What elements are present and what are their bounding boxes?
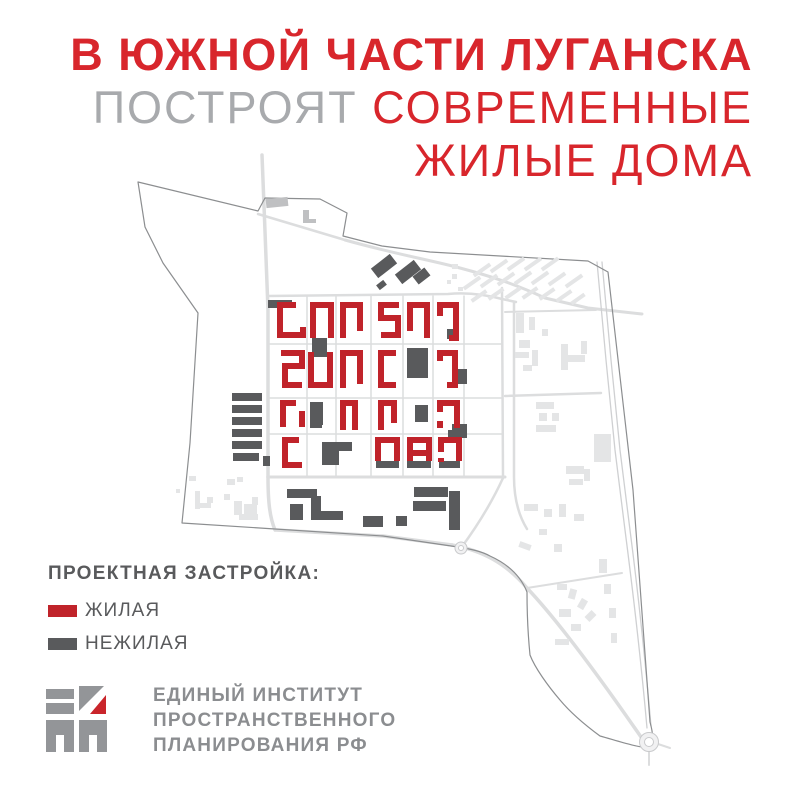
nonresidential-building: [232, 417, 262, 425]
residential-building: [410, 440, 429, 461]
residential-building: [381, 305, 399, 335]
nonresidential-building: [322, 449, 339, 465]
existing-building: [524, 257, 543, 272]
existing-building: [234, 501, 242, 515]
existing-building: [566, 466, 584, 474]
existing-building: [452, 274, 457, 279]
existing-building: [524, 504, 538, 511]
headline-word-gray: ПОСТРОЯТ: [93, 82, 358, 133]
roundabout-island: [645, 738, 654, 747]
existing-building: [176, 489, 180, 493]
residential-building: [343, 403, 355, 430]
road: [258, 214, 345, 240]
nonresidential-building: [439, 461, 460, 468]
existing-building: [458, 287, 463, 291]
existing-building: [224, 494, 230, 500]
nonresidential-building: [414, 487, 448, 497]
nonresidential-building: [413, 501, 446, 511]
road: [505, 393, 601, 396]
railway-line: [602, 262, 651, 726]
nonresidential-building: [396, 516, 407, 526]
existing-building: [536, 402, 554, 409]
existing-building: [555, 289, 572, 303]
railway-line: [597, 262, 647, 728]
existing-building: [239, 514, 258, 520]
existing-building: [504, 286, 521, 300]
existing-building: [565, 274, 584, 289]
existing-building: [584, 610, 596, 622]
existing-building: [490, 259, 509, 274]
nonresidential-building: [376, 461, 399, 468]
headline-line-2: ПОСТРОЯТ СОВРЕМЕННЫЕ: [40, 81, 753, 134]
residential-building: [285, 440, 302, 465]
existing-building: [542, 329, 548, 336]
headline-word-red: СОВРЕМЕННЫЕ: [372, 82, 753, 133]
existing-building: [207, 497, 213, 503]
nonresidential-building: [415, 405, 428, 422]
existing-building: [594, 434, 611, 462]
existing-building: [559, 609, 571, 617]
existing-building: [584, 469, 590, 481]
residential-building: [378, 440, 397, 461]
residential-building: [283, 403, 302, 427]
existing-building: [237, 477, 243, 482]
existing-building: [552, 413, 559, 421]
nonresidential-building: [319, 511, 343, 520]
existing-building: [539, 529, 547, 535]
existing-building: [252, 497, 258, 505]
residential-building: [440, 353, 455, 385]
existing-building: [609, 608, 616, 618]
headline-line-1: В ЮЖНОЙ ЧАСТИ ЛУГАНСКА: [40, 28, 753, 81]
residential-swatch: [48, 605, 77, 617]
existing-building: [189, 476, 196, 481]
existing-building: [518, 541, 531, 551]
nonresidential-building: [232, 393, 262, 401]
road: [268, 477, 275, 530]
nonresidential-building: [376, 280, 387, 290]
residential-building: [343, 353, 360, 388]
institute-logo-text: ЕДИНЫЙ ИНСТИТУТ ПРОСТРАНСТВЕННОГО ПЛАНИР…: [153, 683, 396, 758]
existing-building: [555, 639, 569, 645]
existing-building: [507, 257, 526, 272]
existing-building: [604, 584, 611, 594]
residential-building: [280, 305, 303, 335]
residential-building: [381, 353, 396, 385]
nonresidential-building: [371, 254, 397, 278]
legend-heading: ПРОЕКТНАЯ ЗАСТРОЙКА:: [48, 563, 320, 585]
existing-building: [463, 276, 482, 291]
existing-building: [611, 633, 617, 643]
existing-building: [529, 317, 535, 330]
existing-building: [571, 624, 581, 631]
existing-building: [447, 280, 451, 284]
legend-label-nonresidential: НЕЖИЛАЯ: [85, 633, 188, 655]
existing-building: [574, 514, 584, 521]
existing-building: [561, 355, 585, 362]
existing-building: [554, 544, 562, 552]
existing-building: [581, 341, 587, 354]
legend: ПРОЕКТНАЯ ЗАСТРОЙКА: ЖИЛАЯ НЕЖИЛАЯ: [48, 563, 320, 666]
residential-building: [313, 305, 331, 338]
residential-building: [281, 353, 302, 385]
roundabout-island: [459, 546, 464, 551]
institute-logo: ЕДИНЫЙ ИНСТИТУТ ПРОСТРАНСТВЕННОГО ПЛАНИР…: [46, 686, 396, 758]
existing-building: [569, 479, 583, 485]
existing-building: [303, 219, 316, 223]
nonresidential-building: [407, 348, 428, 378]
nonresidential-swatch: [48, 638, 77, 650]
existing-building: [516, 313, 524, 333]
existing-building: [523, 365, 532, 371]
road: [461, 478, 503, 548]
nonresidential-building: [233, 453, 259, 461]
nonresidential-building: [263, 456, 270, 466]
existing-building: [195, 503, 211, 508]
existing-building: [568, 588, 577, 599]
residential-building: [381, 403, 394, 430]
existing-building: [548, 272, 567, 287]
legend-item-nonresidential: НЕЖИЛАЯ: [48, 633, 320, 655]
road: [658, 744, 670, 748]
road: [505, 310, 596, 312]
headline: В ЮЖНОЙ ЧАСТИ ЛУГАНСКА ПОСТРОЯТ СОВРЕМЕН…: [40, 28, 753, 187]
road: [502, 288, 503, 477]
nonresidential-building: [363, 516, 383, 527]
legend-label-residential: ЖИЛАЯ: [85, 600, 160, 622]
existing-building: [531, 271, 550, 286]
nonresidential-building: [232, 429, 262, 437]
existing-building: [544, 509, 552, 517]
institute-logo-icon: [46, 686, 107, 752]
residential-building: [410, 305, 427, 338]
nonresidential-building: [312, 338, 327, 357]
existing-building: [244, 504, 257, 514]
nonresidential-building: [310, 417, 322, 428]
legend-item-residential: ЖИЛАЯ: [48, 600, 320, 622]
nonresidential-building: [232, 441, 262, 449]
existing-building: [577, 598, 588, 610]
logo-text-line-1: ЕДИНЫЙ ИНСТИТУТ: [153, 683, 396, 708]
existing-building: [515, 352, 529, 358]
existing-building: [227, 479, 235, 485]
existing-building: [539, 413, 547, 421]
existing-building: [514, 271, 533, 286]
existing-building: [557, 584, 567, 590]
existing-building: [536, 425, 556, 432]
logo-text-line-3: ПЛАНИРОВАНИЯ РФ: [153, 733, 396, 758]
existing-building: [452, 264, 458, 269]
road: [514, 302, 527, 529]
existing-building: [519, 340, 530, 348]
existing-building: [559, 504, 566, 517]
residential-building: [440, 403, 457, 428]
headline-line-3: ЖИЛЫЕ ДОМА: [40, 134, 753, 187]
nonresidential-building: [449, 491, 460, 530]
logo-text-line-2: ПРОСТРАНСТВЕННОГО: [153, 708, 396, 733]
poster: В ЮЖНОЙ ЧАСТИ ЛУГАНСКА ПОСТРОЯТ СОВРЕМЕН…: [0, 0, 800, 800]
residential-building: [441, 440, 459, 462]
existing-building: [532, 350, 538, 366]
existing-building: [570, 293, 585, 305]
residential-building: [343, 305, 360, 338]
nonresidential-building: [290, 504, 303, 520]
existing-building: [599, 559, 607, 573]
nonresidential-building: [232, 405, 262, 413]
nonresidential-building: [407, 461, 431, 468]
